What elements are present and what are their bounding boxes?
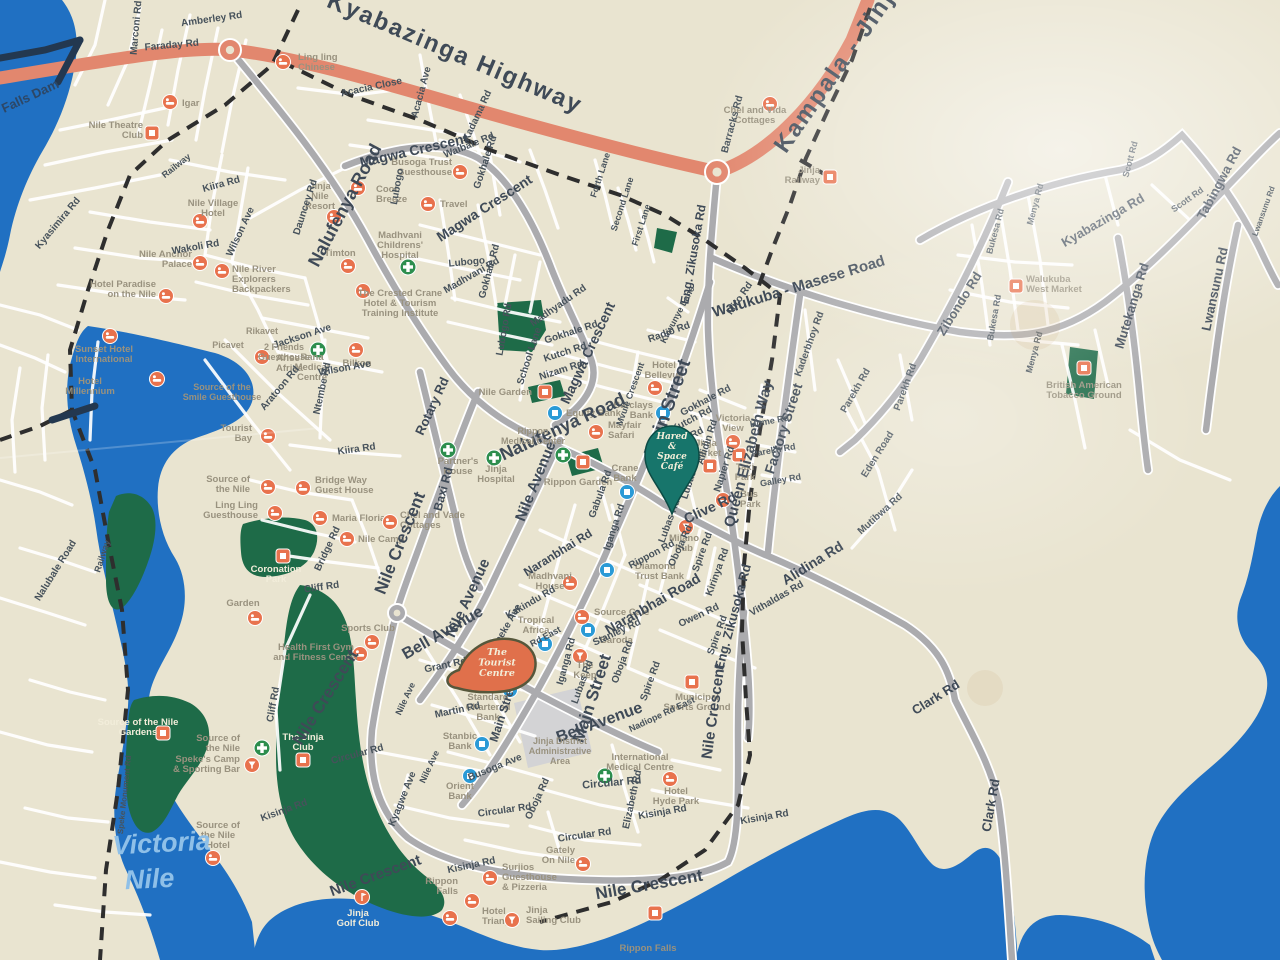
bed-icon xyxy=(261,480,276,495)
svg-text:Hared: Hared xyxy=(655,432,688,442)
bed-icon xyxy=(483,871,498,886)
bed-icon xyxy=(150,372,165,387)
bed-icon xyxy=(276,55,291,70)
bed-icon xyxy=(313,511,328,526)
poi-label: Rippon Falls xyxy=(620,943,677,954)
poi-label: GatelyOn Nile xyxy=(542,845,576,866)
bed-icon xyxy=(341,259,356,274)
poi-label: Garden xyxy=(226,598,259,609)
poi-label: The Crested CraneHotel & TourismTraining… xyxy=(358,288,442,319)
poi-label: Sports Club xyxy=(341,623,395,634)
bed-icon xyxy=(340,532,355,547)
bed-icon xyxy=(443,911,458,926)
svg-text:Centre: Centre xyxy=(479,668,515,679)
road-label: Picavet xyxy=(212,340,244,350)
sq-icon xyxy=(296,753,310,767)
bank-icon xyxy=(620,485,635,500)
poi-label: Sunset HotelInternational xyxy=(75,344,133,365)
bed-icon xyxy=(159,289,174,304)
poi-label: Bridge WayGuest House xyxy=(315,475,374,496)
bed-icon xyxy=(365,635,380,650)
jinja-street-map: Ling lingChineseIgarNile TheatreClubChel… xyxy=(0,0,1280,960)
roundabout-island xyxy=(394,610,401,617)
map-photo: Ling lingChineseIgarNile TheatreClubChel… xyxy=(0,0,1280,960)
poi-label: Maria Floria xyxy=(332,513,386,524)
poi-label: OrientBank xyxy=(446,781,475,802)
poi-label: Nile Garden xyxy=(479,387,533,398)
svg-text:The: The xyxy=(487,647,507,658)
poi-label: Igar xyxy=(182,98,200,109)
svg-text:Space: Space xyxy=(657,452,687,462)
sq-icon xyxy=(538,385,552,399)
cross-icon xyxy=(400,259,416,275)
sq-icon xyxy=(685,675,699,689)
bed-icon xyxy=(663,772,678,787)
stain-mark xyxy=(1010,300,1060,350)
svg-text:Café: Café xyxy=(661,461,684,472)
bed-icon xyxy=(576,857,591,872)
road-label: Victoria xyxy=(112,825,211,860)
bank-icon xyxy=(600,563,615,578)
poi-label: Ling lingChinese xyxy=(298,52,338,73)
cross-icon xyxy=(254,740,270,756)
bed-icon xyxy=(103,329,118,344)
bed-icon xyxy=(349,343,364,358)
sq-icon xyxy=(576,455,590,469)
bed-icon xyxy=(163,95,178,110)
bed-icon xyxy=(575,610,590,625)
bed-icon xyxy=(648,381,663,396)
stain-mark xyxy=(967,670,1003,706)
road-label: 2 FriendsGuesthouse xyxy=(258,342,310,362)
bed-icon xyxy=(296,481,311,496)
poi-label: Speke's Camp& Sporting Bar xyxy=(173,754,240,775)
bed-icon xyxy=(268,506,283,521)
bar-icon xyxy=(505,913,520,928)
road-label: Rikavet xyxy=(246,326,278,336)
flag-icon xyxy=(355,890,370,905)
bar-icon xyxy=(245,758,260,773)
sq-icon xyxy=(145,126,159,140)
sq-icon xyxy=(276,549,290,563)
sq-icon xyxy=(156,726,170,740)
road-label: Nile xyxy=(124,863,175,896)
svg-text:Tourist: Tourist xyxy=(478,658,516,669)
svg-text:&: & xyxy=(668,442,677,452)
bed-icon xyxy=(261,429,276,444)
poi-label: MadhvaniChildrens'Hospital xyxy=(377,230,423,261)
bed-icon xyxy=(589,425,604,440)
poi-label: CraneBank xyxy=(612,463,639,484)
poi-label: Travel xyxy=(440,199,467,210)
bed-icon xyxy=(193,256,208,271)
bed-icon xyxy=(215,264,230,279)
bed-icon xyxy=(453,165,468,180)
sq-icon xyxy=(648,906,662,920)
roundabout-island xyxy=(226,46,234,54)
bed-icon xyxy=(421,197,436,212)
road-label: Source of theSmile Guesthouse xyxy=(183,382,262,402)
bed-icon xyxy=(248,611,263,626)
glare-overlay xyxy=(690,240,1210,600)
poi-label: InternationalMedical Centre xyxy=(606,752,674,773)
bed-icon xyxy=(465,894,480,909)
